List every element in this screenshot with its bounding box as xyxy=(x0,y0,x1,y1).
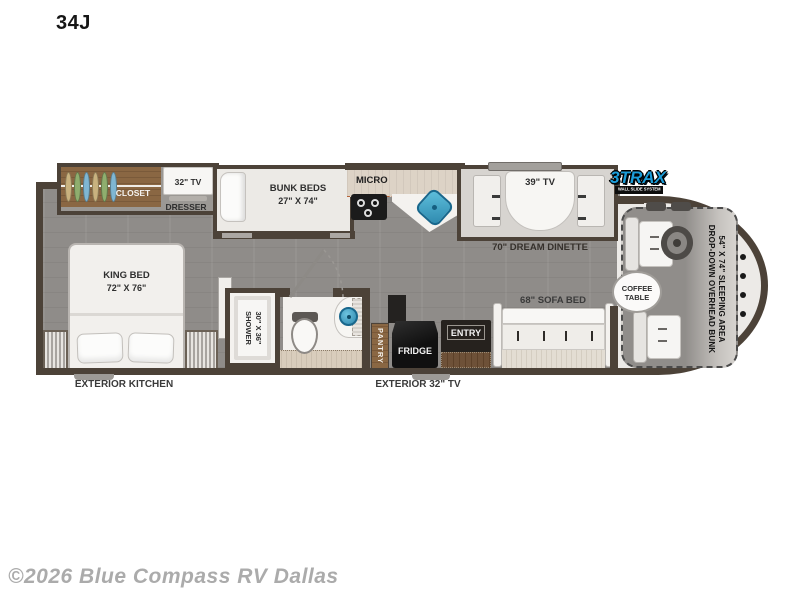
overhead-bunk-size: 54" X 74" SLEEPING AREA xyxy=(716,209,726,369)
trax-tagline: WALL SLIDE SYSTEM xyxy=(618,188,661,192)
bed-pillow xyxy=(76,332,123,364)
passenger-seat-cushion xyxy=(647,315,681,359)
windshield-dot-icon xyxy=(740,273,746,279)
burner-icon xyxy=(357,199,365,207)
dinette-label: 70" DREAM DINETTE xyxy=(465,242,615,253)
fridge-label: FRIDGE xyxy=(392,346,438,356)
seat-stitch-icon xyxy=(650,248,659,250)
driver-seat xyxy=(625,217,639,271)
shower-label: 30" X 36" SHOWER xyxy=(241,300,263,356)
sofa-base xyxy=(502,350,605,368)
bunk-pillow xyxy=(220,172,246,222)
watermark: ©2026 Blue Compass RV Dallas xyxy=(8,565,339,589)
passenger-seat xyxy=(633,311,647,363)
entry-label: ENTRY xyxy=(447,325,485,340)
bench-latch-icon xyxy=(578,195,586,198)
seatbelt-icon xyxy=(517,331,519,341)
slide-stop xyxy=(646,202,666,211)
bunk-beds-size: 27" X 74" xyxy=(249,195,347,207)
windshield-dot-icon xyxy=(740,311,746,317)
sink-drain-icon xyxy=(432,205,437,210)
tv-39-label: 39" TV xyxy=(507,177,573,188)
hanger-icon xyxy=(74,172,81,202)
bath-door-swing xyxy=(282,242,366,304)
sofa-bed-label: 68" SOFA BED xyxy=(498,295,608,306)
shower-size: 30" X 36" xyxy=(253,300,263,356)
hanger-icon xyxy=(83,172,90,202)
king-bed-label: KING BED 72" X 76" xyxy=(68,270,185,294)
seat-stitch-icon xyxy=(658,328,667,330)
burner-icon xyxy=(364,209,372,217)
bench-latch-icon xyxy=(578,217,586,220)
slide-foot xyxy=(330,233,350,238)
trax-tagline-bar: WALL SLIDE SYSTEM xyxy=(615,186,663,194)
tv-32: 32" TV xyxy=(163,167,213,195)
bunk-beds-name: BUNK BEDS xyxy=(249,183,347,195)
bunk-beds-label: BUNK BEDS 27" X 74" xyxy=(249,183,347,207)
pantry-label: PANTRY xyxy=(371,324,389,368)
coffee-table: COFFEE TABLE xyxy=(612,271,662,313)
closet-label: CLOSET xyxy=(105,188,161,198)
tv-39 xyxy=(488,162,562,171)
steering-hub-icon xyxy=(673,239,681,247)
overhead-bunk-name: DROP-DOWN OVERHEAD BUNK xyxy=(706,209,716,369)
bed-blanket-fold xyxy=(70,313,183,316)
shower-name: SHOWER xyxy=(243,300,253,356)
bed-pillow xyxy=(127,332,174,364)
seatbelt-icon xyxy=(591,331,593,341)
bench-latch-icon xyxy=(492,195,500,198)
bedroom-cabinet xyxy=(185,330,218,368)
slide-foot xyxy=(222,233,252,238)
sofa-back xyxy=(502,308,605,324)
coffee-table-label: TABLE xyxy=(614,293,660,302)
seat-stitch-icon xyxy=(650,236,659,238)
sofa-arm xyxy=(493,303,502,367)
burner-icon xyxy=(371,199,379,207)
floorplan-model-title: 34J xyxy=(56,12,91,35)
overhead-bunk-label: 54" X 74" SLEEPING AREA DROP-DOWN OVERHE… xyxy=(706,209,726,369)
living-wall xyxy=(610,306,618,368)
seat-stitch-icon xyxy=(658,340,667,342)
slide-stop xyxy=(671,202,691,211)
fridge xyxy=(392,321,438,368)
hanger-icon xyxy=(65,172,72,202)
coffee-table-label: COFFEE xyxy=(614,284,660,293)
sink-drain-icon xyxy=(347,315,351,319)
exterior-tv-label: EXTERIOR 32" TV xyxy=(366,379,470,390)
king-bed-size: 72" X 76" xyxy=(68,282,185,294)
galley-cabinet xyxy=(388,295,406,323)
trax-brand: 3TRAX xyxy=(606,168,670,188)
seatbelt-icon xyxy=(543,331,545,341)
exterior-kitchen-label: EXTERIOR KITCHEN xyxy=(50,379,198,390)
kitchen-wall xyxy=(345,163,465,170)
windshield-dot-icon xyxy=(740,292,746,298)
seatbelt-icon xyxy=(565,331,567,341)
entry-steps xyxy=(441,352,491,368)
hanger-icon xyxy=(92,172,99,202)
dresser-label: DRESSER xyxy=(155,202,217,212)
bench-latch-icon xyxy=(492,217,500,220)
tv-stand xyxy=(169,196,207,201)
king-bed-name: KING BED xyxy=(68,270,185,282)
windshield-dot-icon xyxy=(740,254,746,260)
trax-logo: 3TRAX WALL SLIDE SYSTEM xyxy=(606,168,670,198)
bedroom-cabinet xyxy=(43,330,68,368)
microwave-label: MICRO xyxy=(356,175,408,186)
